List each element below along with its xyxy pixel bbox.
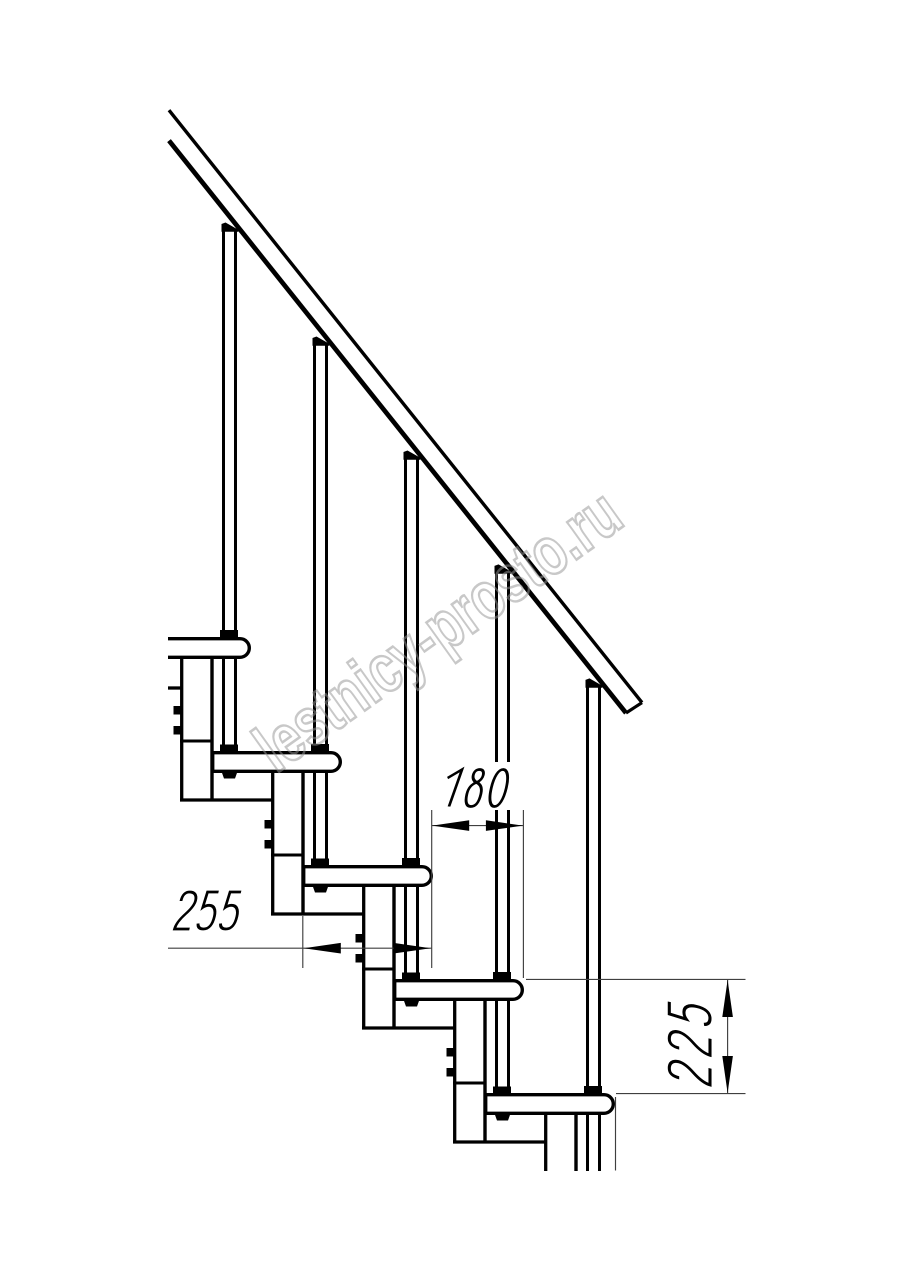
svg-text:lestnicy-prosto.ru: lestnicy-prosto.ru [241,474,636,786]
